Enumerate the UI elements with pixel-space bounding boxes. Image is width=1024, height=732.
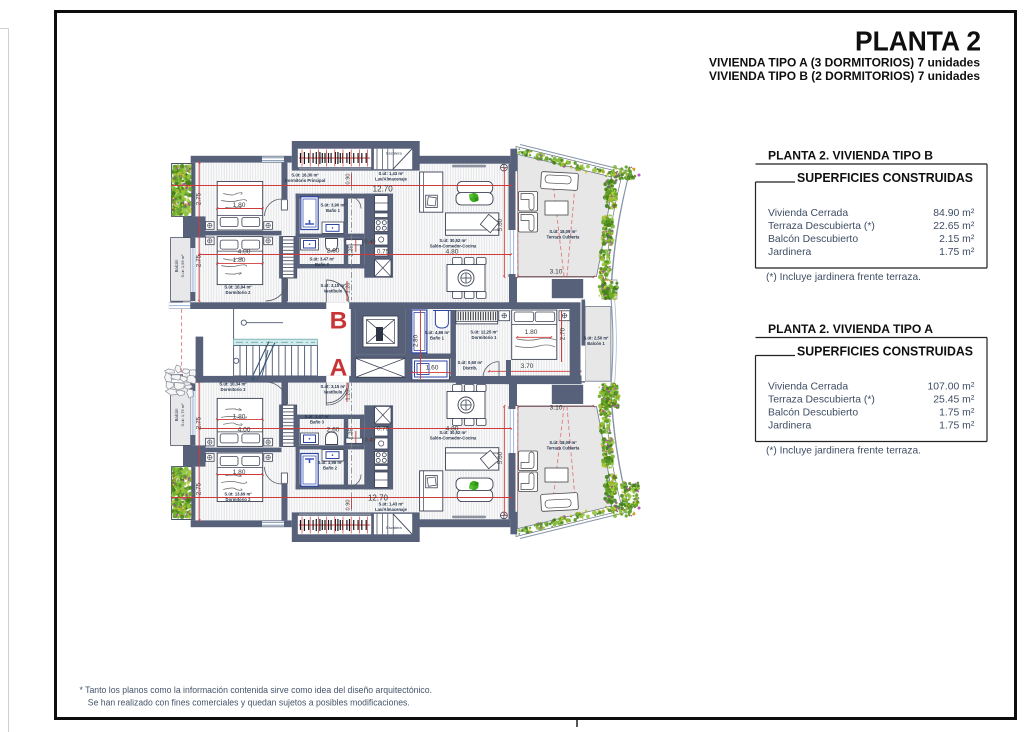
svg-text:S.út: 3,47 m²: S.út: 3,47 m² <box>310 257 336 262</box>
svg-text:Lav/Almacenaje: Lav/Almacenaje <box>375 507 407 512</box>
svg-text:S.út: 18,09 m²: S.út: 18,09 m² <box>549 229 577 234</box>
svg-text:Terraza Descubierta (*): Terraza Descubierta (*) <box>768 395 875 406</box>
svg-text:Balcón Descubierto: Balcón Descubierto <box>768 234 858 245</box>
svg-text:Baño 3: Baño 3 <box>310 419 325 424</box>
svg-text:S.út: 18,09 m²: S.út: 18,09 m² <box>549 440 577 445</box>
svg-text:S.út: 2,50 m²: S.út: 2,50 m² <box>584 336 610 341</box>
svg-text:84.90 m²: 84.90 m² <box>933 208 975 219</box>
svg-text:1.75 m²: 1.75 m² <box>939 421 975 432</box>
svg-text:1.75 m²: 1.75 m² <box>939 247 975 258</box>
svg-text:SUPERFICIES CONSTRUIDAS: SUPERFICIES CONSTRUIDAS <box>797 345 973 359</box>
svg-text:12.70: 12.70 <box>373 184 394 193</box>
svg-text:PLANTA 2: PLANTA 2 <box>855 26 981 57</box>
svg-text:Dormitorio 1: Dormitorio 1 <box>472 335 498 340</box>
svg-text:2.75: 2.75 <box>196 482 203 495</box>
svg-text:S.út: 10,94 m²: S.út: 10,94 m² <box>224 285 252 290</box>
svg-text:1.60: 1.60 <box>426 365 439 372</box>
svg-text:Terraza Cubierta: Terraza Cubierta <box>547 234 580 239</box>
svg-text:2.60: 2.60 <box>327 426 340 433</box>
svg-text:1.80: 1.80 <box>233 413 246 420</box>
svg-text:S.út: 3,90 m²: S.út: 3,90 m² <box>321 203 347 208</box>
svg-text:Vestíbulo: Vestíbulo <box>324 389 343 394</box>
svg-text:Balcón: Balcón <box>174 408 179 421</box>
svg-text:S.út: 10,34 m²: S.út: 10,34 m² <box>219 382 247 387</box>
svg-text:PLANTA 2. VIVIENDA TIPO A: PLANTA 2. VIVIENDA TIPO A <box>768 324 933 336</box>
svg-text:S.út: 3,15 m²: S.út: 3,15 m² <box>321 384 347 389</box>
svg-text:A: A <box>330 355 348 382</box>
svg-text:1.80: 1.80 <box>233 469 246 476</box>
svg-text:2.75: 2.75 <box>196 254 203 267</box>
svg-text:4.00: 4.00 <box>238 427 251 434</box>
svg-text:22.65 m²: 22.65 m² <box>933 221 975 232</box>
svg-text:S.út: 4,86 m²: S.út: 4,86 m² <box>425 330 451 335</box>
svg-text:3.10: 3.10 <box>550 269 563 276</box>
svg-text:0.40: 0.40 <box>365 239 376 245</box>
svg-text:0.75: 0.75 <box>377 425 390 432</box>
svg-text:Vivienda Cerrada: Vivienda Cerrada <box>768 208 848 219</box>
svg-text:S.út: 3,98 m²: S.út: 3,98 m² <box>318 460 344 465</box>
svg-text:Jardinera: Jardinera <box>768 247 812 258</box>
svg-text:Escalera: Escalera <box>386 151 402 156</box>
svg-text:12.70: 12.70 <box>368 493 389 502</box>
svg-text:2.60: 2.60 <box>327 247 340 254</box>
svg-text:Terraza Descubierta (*): Terraza Descubierta (*) <box>768 221 875 232</box>
svg-text:2.80: 2.80 <box>413 334 420 347</box>
svg-text:B: B <box>330 308 348 335</box>
svg-text:0.90: 0.90 <box>346 500 352 511</box>
svg-text:Dormitorio 3: Dormitorio 3 <box>221 387 247 392</box>
svg-text:4.80: 4.80 <box>446 248 459 255</box>
svg-text:Dormitorio 2: Dormitorio 2 <box>226 290 252 295</box>
svg-text:3.10: 3.10 <box>550 405 563 412</box>
svg-text:* Tanto los planos como la inf: * Tanto los planos como la información c… <box>80 685 433 696</box>
svg-text:0.75: 0.75 <box>377 248 390 255</box>
svg-text:Balcón 1: Balcón 1 <box>587 341 605 346</box>
svg-text:Lav/Almacenaje: Lav/Almacenaje <box>375 176 407 181</box>
svg-text:Dormitorio 2: Dormitorio 2 <box>226 497 252 502</box>
svg-text:Baño 2: Baño 2 <box>315 262 330 267</box>
svg-text:1.25: 1.25 <box>349 246 355 257</box>
svg-text:Escalera: Escalera <box>386 525 402 530</box>
svg-text:Dormitorio Principal: Dormitorio Principal <box>285 178 325 183</box>
svg-text:4.00: 4.00 <box>238 249 251 256</box>
svg-text:Salón-Comedor-Cocina: Salón-Comedor-Cocina <box>430 435 477 440</box>
svg-text:S.út: 12,25 m²: S.út: 12,25 m² <box>470 330 498 335</box>
svg-text:S.út: 3,47 m²: S.út: 3,47 m² <box>305 414 331 419</box>
svg-text:1.25: 1.25 <box>349 429 355 440</box>
svg-text:S.út: 30,52 m²: S.út: 30,52 m² <box>439 238 467 243</box>
svg-text:Se han realizado con fines com: Se han realizado con fines comerciales y… <box>88 698 410 709</box>
svg-text:Balcón Descubierto: Balcón Descubierto <box>768 408 858 419</box>
svg-text:S.út: 3,15 m²: S.út: 3,15 m² <box>321 283 347 288</box>
svg-text:Baño 2: Baño 2 <box>323 465 338 470</box>
svg-text:S.út: 0,60 m²: S.út: 0,60 m² <box>458 360 484 365</box>
svg-text:Jardinera: Jardinera <box>768 421 812 432</box>
svg-text:Baño 1: Baño 1 <box>430 335 445 340</box>
svg-text:2.15 m²: 2.15 m² <box>939 234 975 245</box>
svg-text:0.90: 0.90 <box>346 174 352 185</box>
svg-text:1.75 m²: 1.75 m² <box>939 408 975 419</box>
svg-text:Vestíbulo: Vestíbulo <box>324 288 343 293</box>
svg-text:SUPERFICIES CONSTRUIDAS: SUPERFICIES CONSTRUIDAS <box>797 171 973 185</box>
svg-text:25.45 m²: 25.45 m² <box>933 395 975 406</box>
svg-text:S.út: 13,69 m²: S.út: 13,69 m² <box>224 492 252 497</box>
svg-text:VIVIENDA TIPO A (3 DORMITORIOS: VIVIENDA TIPO A (3 DORMITORIOS) 7 unidad… <box>709 56 980 70</box>
svg-text:2.75: 2.75 <box>196 416 203 429</box>
svg-text:1.20: 1.20 <box>346 283 352 294</box>
svg-text:1.20: 1.20 <box>346 390 352 401</box>
svg-text:1.80: 1.80 <box>525 329 538 336</box>
svg-text:1.80: 1.80 <box>233 257 246 264</box>
svg-text:(*) Incluye jardinera frente t: (*) Incluye jardinera frente terraza. <box>766 446 921 457</box>
svg-text:5.60: 5.60 <box>497 218 504 231</box>
svg-text:PLANTA 2. VIVIENDA TIPO B: PLANTA 2. VIVIENDA TIPO B <box>768 151 933 163</box>
svg-text:5.60: 5.60 <box>497 451 504 464</box>
svg-text:Vivienda Cerrada: Vivienda Cerrada <box>768 382 848 393</box>
svg-text:0.40: 0.40 <box>365 437 376 443</box>
svg-text:2.75: 2.75 <box>196 192 203 205</box>
svg-text:S.út: 16,30 m²: S.út: 16,30 m² <box>291 173 319 178</box>
svg-text:Distrib.: Distrib. <box>463 365 477 370</box>
svg-text:3.70: 3.70 <box>521 363 534 370</box>
svg-text:VIVIENDA TIPO B (2 DORMITORIOS: VIVIENDA TIPO B (2 DORMITORIOS) 7 unidad… <box>709 69 980 83</box>
svg-text:(*) Incluye jardinera frente t: (*) Incluye jardinera frente terraza. <box>766 272 921 283</box>
svg-text:S.út: 1,43 m²: S.út: 1,43 m² <box>379 171 405 176</box>
svg-text:Terraza Cubierta: Terraza Cubierta <box>547 445 580 450</box>
svg-text:1.80: 1.80 <box>233 202 246 209</box>
svg-text:S.út: 1,95 m²: S.út: 1,95 m² <box>180 254 185 278</box>
svg-text:4.80: 4.80 <box>446 425 459 432</box>
svg-text:S.út: 1,75 m²: S.út: 1,75 m² <box>180 403 185 427</box>
svg-text:107.00 m²: 107.00 m² <box>928 382 975 393</box>
svg-text:Baño 1: Baño 1 <box>326 208 341 213</box>
svg-text:2.70: 2.70 <box>560 327 567 340</box>
svg-text:Balcón: Balcón <box>174 259 179 272</box>
